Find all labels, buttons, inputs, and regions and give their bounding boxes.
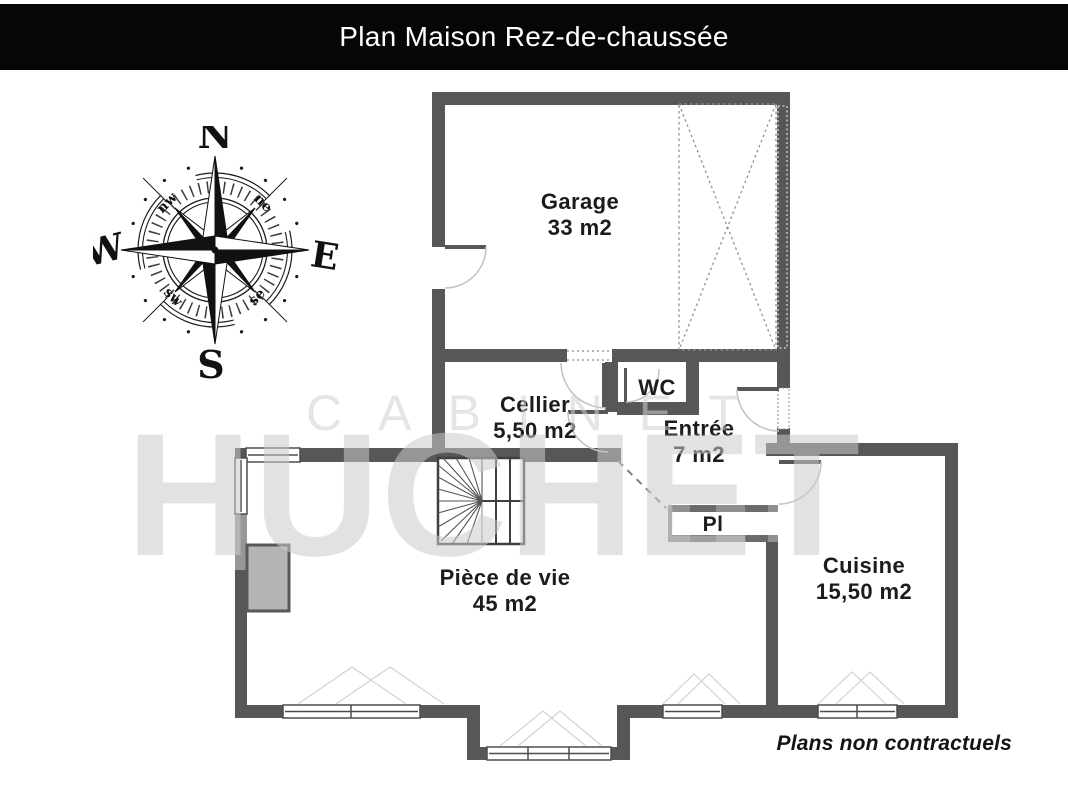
garage-door	[679, 104, 787, 350]
compass-rose: N S W E nw ne sw se	[93, 126, 339, 382]
room-label-placard: Pl	[703, 512, 724, 538]
dashed-boundary	[618, 461, 666, 508]
door-front-entrance	[737, 387, 789, 431]
compass-west-label: W	[93, 225, 129, 276]
window-living-south-2	[663, 705, 722, 718]
window-living-south	[283, 705, 420, 718]
room-name: Pl	[703, 512, 724, 538]
fireplace	[247, 545, 289, 611]
window-left-wall	[235, 458, 247, 514]
title-bar: Plan Maison Rez-de-chaussée	[0, 4, 1068, 70]
room-name: Cuisine	[816, 553, 912, 579]
compass-east-label: E	[308, 233, 339, 279]
window-kitchen-south	[818, 705, 897, 718]
room-name: Entrée	[664, 416, 735, 442]
door-cuisine	[779, 460, 821, 504]
room-label-piece-de-vie: Pièce de vie 45 m2	[440, 565, 571, 617]
door-garage-side	[445, 245, 486, 288]
room-name: Cellier	[493, 392, 577, 418]
room-name: Pièce de vie	[440, 565, 571, 591]
garage-cellier-opening	[567, 349, 612, 362]
compass-north-label: N	[198, 126, 233, 157]
room-area: 15,50 m2	[816, 579, 912, 605]
compass-ne-label: ne	[250, 191, 275, 216]
staircase	[438, 458, 524, 544]
compass-south-label: S	[197, 342, 224, 382]
floor-plan-page: Plan Maison Rez-de-chaussée	[0, 0, 1068, 800]
room-area: 45 m2	[440, 591, 571, 617]
room-name: Garage	[541, 189, 619, 215]
room-area: 5,50 m2	[493, 418, 577, 444]
room-area: 33 m2	[541, 215, 619, 241]
window-top-left	[246, 448, 300, 462]
room-label-cuisine: Cuisine 15,50 m2	[816, 553, 912, 605]
disclaimer-text: Plans non contractuels	[777, 732, 1012, 756]
room-label-entree: Entrée 7 m2	[664, 416, 735, 468]
page-title: Plan Maison Rez-de-chaussée	[339, 21, 728, 53]
room-label-garage: Garage 33 m2	[541, 189, 619, 241]
room-area: 7 m2	[664, 442, 735, 468]
room-name: WC	[638, 375, 675, 401]
window-bay	[487, 747, 611, 760]
room-label-wc: WC	[638, 375, 675, 401]
room-label-cellier: Cellier 5,50 m2	[493, 392, 577, 444]
